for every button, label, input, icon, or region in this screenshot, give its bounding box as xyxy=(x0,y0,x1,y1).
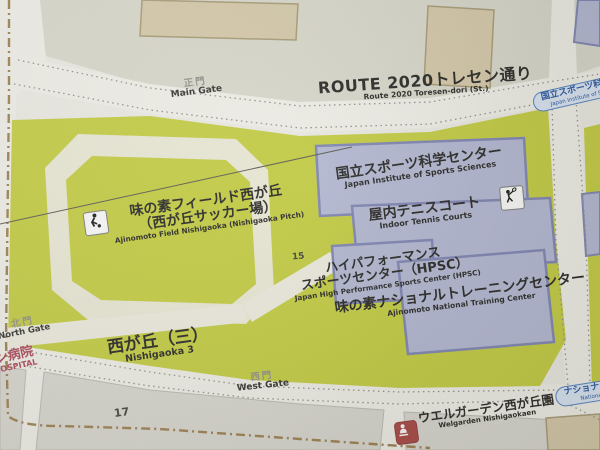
building-tan-south-east xyxy=(546,414,600,450)
building-east-edge xyxy=(582,192,600,256)
block-number-15: 15 xyxy=(292,251,305,262)
block-number-17: 17 xyxy=(113,405,130,420)
building-tan-north-west xyxy=(140,0,298,40)
park-map-photo: ROUTE 2020トレセン通り Route 2020 Toresen-dori… xyxy=(0,0,600,450)
tennis-player-icon xyxy=(499,185,525,211)
building-top-right xyxy=(574,0,600,46)
